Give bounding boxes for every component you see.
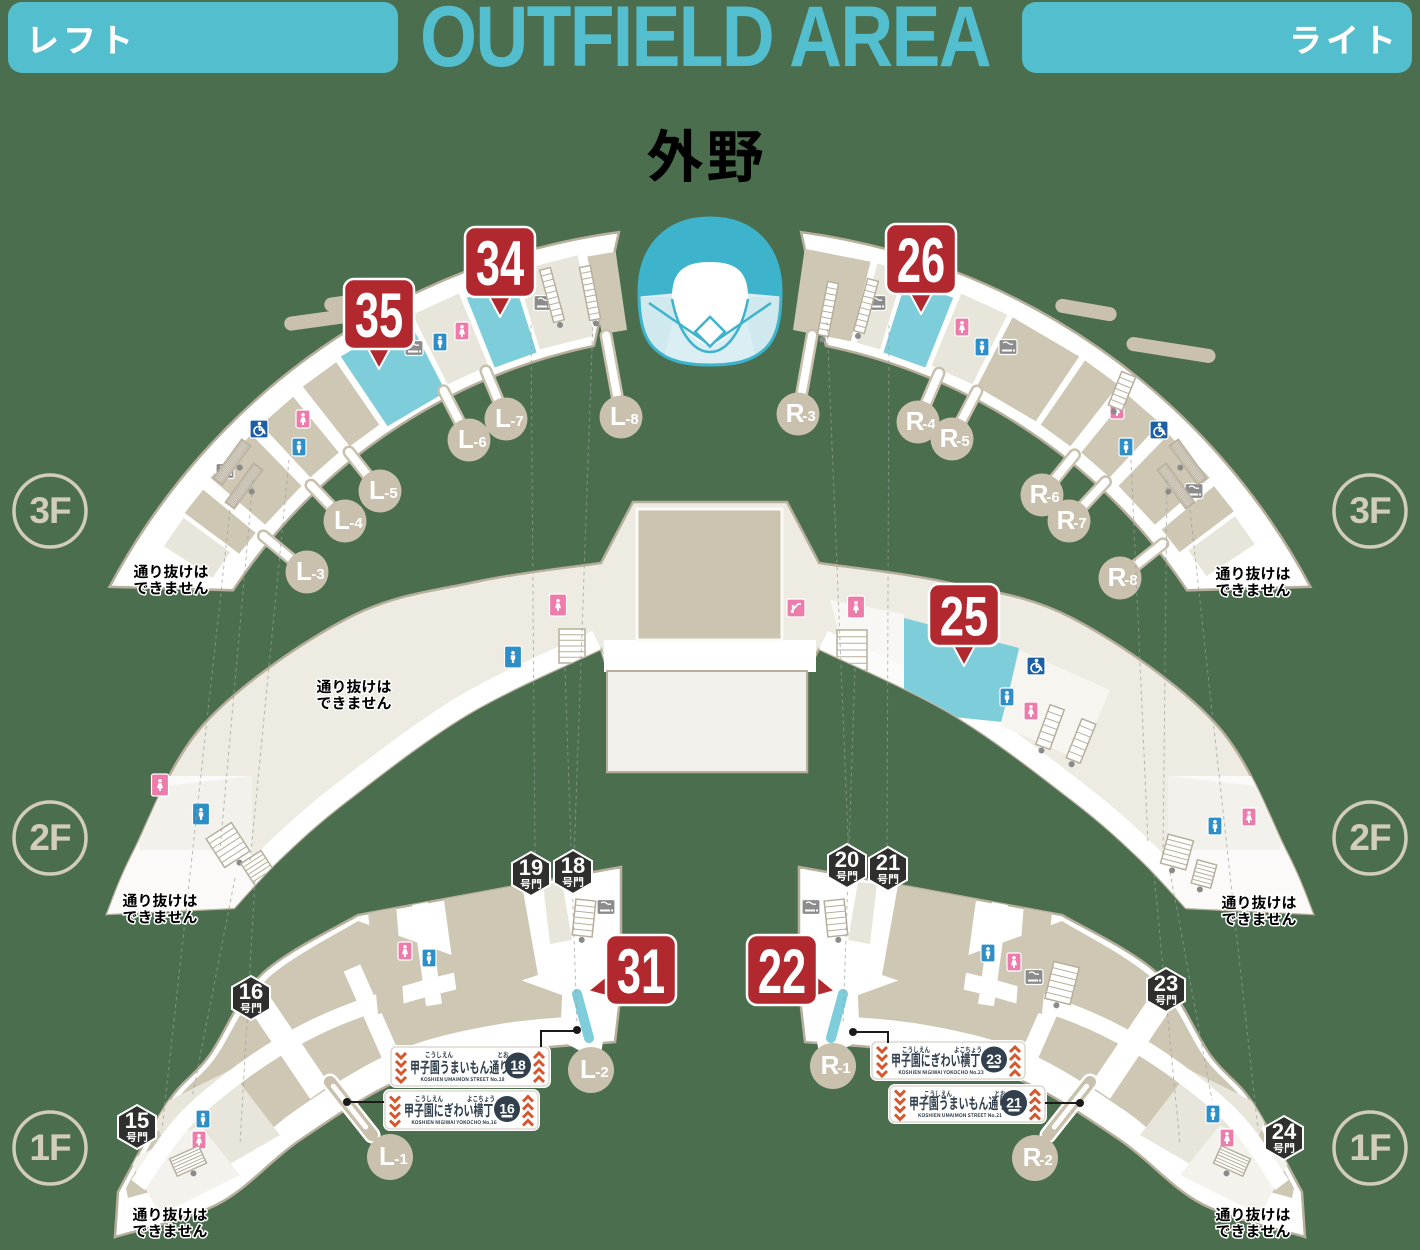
svg-text:-4: -4	[349, 515, 363, 532]
svg-text:35: 35	[355, 281, 403, 351]
svg-text:25: 25	[940, 584, 988, 647]
svg-text:L: L	[580, 1054, 596, 1084]
svg-text:21: 21	[876, 850, 900, 875]
svg-text:-2: -2	[1039, 1152, 1052, 1169]
svg-text:26: 26	[897, 226, 945, 296]
svg-text:23: 23	[1154, 971, 1178, 996]
svg-text:-3: -3	[311, 566, 324, 583]
svg-text:3F: 3F	[29, 490, 71, 531]
svg-text:L: L	[610, 401, 626, 431]
svg-text:-5: -5	[384, 485, 397, 502]
svg-text:-1: -1	[837, 1060, 850, 1077]
svg-text:L: L	[379, 1141, 395, 1171]
svg-text:2F: 2F	[1349, 817, 1391, 858]
svg-text:19: 19	[519, 855, 543, 880]
svg-text:-1: -1	[394, 1151, 407, 1168]
svg-text:2F: 2F	[29, 817, 71, 858]
svg-text:18: 18	[561, 853, 585, 878]
svg-text:1F: 1F	[29, 1127, 71, 1168]
svg-text:15: 15	[125, 1108, 149, 1133]
svg-text:23: 23	[986, 1051, 1002, 1067]
svg-text:16: 16	[499, 1101, 515, 1117]
svg-text:-6: -6	[473, 434, 486, 451]
svg-text:OUTFIELD AREA: OUTFIELD AREA	[420, 0, 990, 85]
svg-text:20: 20	[835, 847, 859, 872]
svg-text:-7: -7	[1073, 515, 1086, 532]
svg-text:-8: -8	[625, 411, 638, 428]
svg-text:3F: 3F	[1349, 490, 1391, 531]
svg-text:-3: -3	[802, 408, 815, 425]
svg-text:24: 24	[1272, 1119, 1297, 1144]
svg-text:L: L	[458, 424, 474, 454]
svg-text:1F: 1F	[1349, 1127, 1391, 1168]
svg-text:L: L	[369, 475, 385, 505]
svg-text:L: L	[296, 556, 312, 586]
svg-text:34: 34	[476, 229, 524, 299]
svg-text:-2: -2	[595, 1064, 608, 1081]
svg-text:21: 21	[1006, 1095, 1022, 1111]
svg-text:L: L	[495, 403, 511, 433]
svg-text:L: L	[334, 505, 350, 535]
svg-text:-5: -5	[956, 433, 969, 450]
svg-text:-7: -7	[510, 413, 523, 430]
svg-text:31: 31	[617, 937, 665, 1007]
svg-text:16: 16	[239, 979, 263, 1004]
svg-text:18: 18	[510, 1057, 526, 1073]
svg-text:22: 22	[758, 937, 806, 1007]
